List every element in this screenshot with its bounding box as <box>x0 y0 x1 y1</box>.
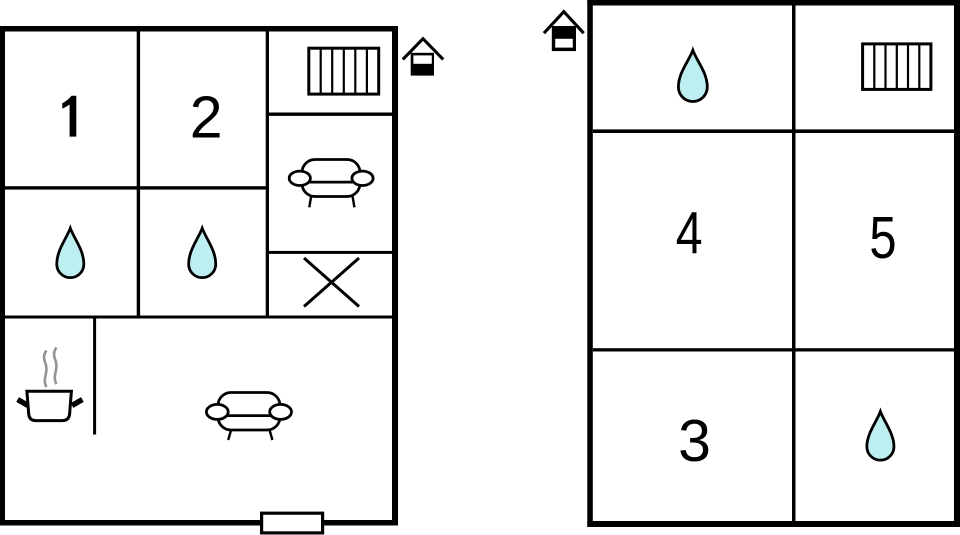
svg-text:2: 2 <box>190 84 223 150</box>
svg-text:4: 4 <box>676 201 703 267</box>
svg-text:5: 5 <box>869 205 896 271</box>
svg-text:3: 3 <box>678 408 711 474</box>
